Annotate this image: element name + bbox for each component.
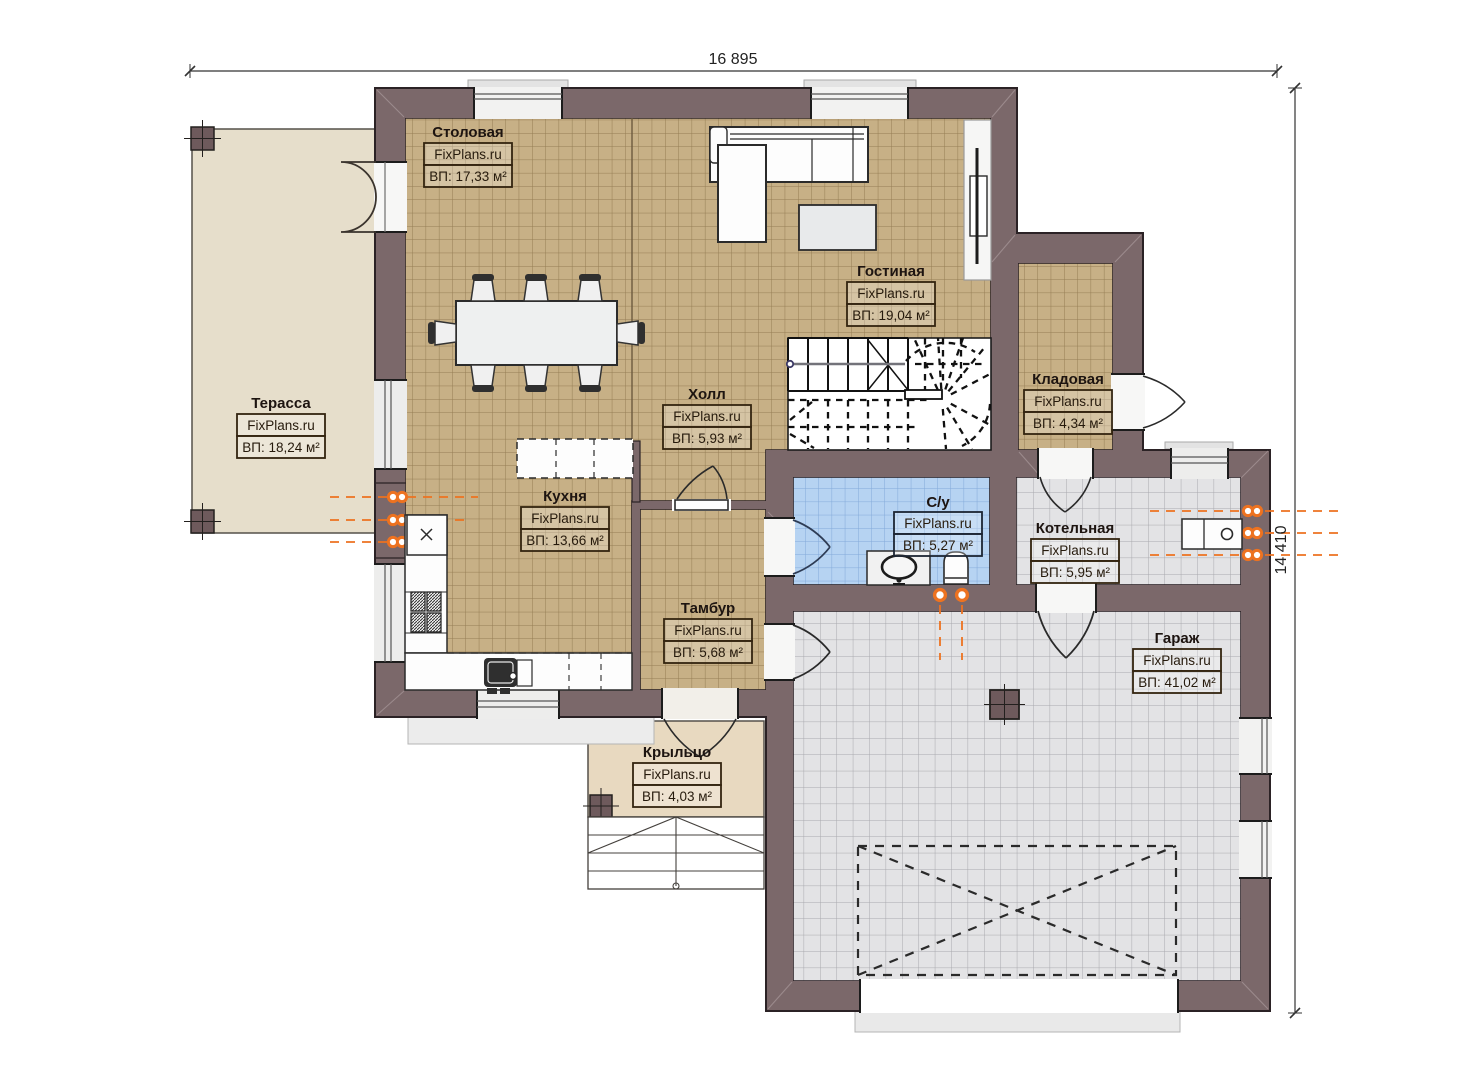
svg-text:Кухня: Кухня xyxy=(543,488,587,505)
svg-text:FixPlans.ru: FixPlans.ru xyxy=(857,286,925,301)
svg-text:ВП: 19,04 м²: ВП: 19,04 м² xyxy=(852,308,930,323)
svg-text:Столовая: Столовая xyxy=(432,124,503,141)
svg-text:ВП: 4,03 м²: ВП: 4,03 м² xyxy=(642,789,713,804)
svg-text:FixPlans.ru: FixPlans.ru xyxy=(247,418,315,433)
svg-text:FixPlans.ru: FixPlans.ru xyxy=(531,511,599,526)
svg-text:ВП: 4,34 м²: ВП: 4,34 м² xyxy=(1033,416,1104,431)
svg-text:Гараж: Гараж xyxy=(1155,630,1200,647)
svg-text:Крыльцо: Крыльцо xyxy=(643,744,711,761)
svg-text:ВП: 13,66 м²: ВП: 13,66 м² xyxy=(526,533,604,548)
svg-text:FixPlans.ru: FixPlans.ru xyxy=(643,767,711,782)
svg-text:FixPlans.ru: FixPlans.ru xyxy=(904,516,972,531)
svg-text:Котельная: Котельная xyxy=(1036,520,1115,537)
svg-text:ВП: 5,27 м²: ВП: 5,27 м² xyxy=(903,538,974,553)
svg-text:14 410: 14 410 xyxy=(1273,525,1290,574)
svg-text:Холл: Холл xyxy=(688,386,726,403)
svg-text:ВП: 18,24 м²: ВП: 18,24 м² xyxy=(242,440,320,455)
svg-text:FixPlans.ru: FixPlans.ru xyxy=(1034,394,1102,409)
svg-text:FixPlans.ru: FixPlans.ru xyxy=(673,409,741,424)
svg-text:FixPlans.ru: FixPlans.ru xyxy=(434,147,502,162)
svg-text:FixPlans.ru: FixPlans.ru xyxy=(1143,653,1211,668)
svg-text:Терасса: Терасса xyxy=(251,395,311,412)
svg-text:ВП: 5,95 м²: ВП: 5,95 м² xyxy=(1040,565,1111,580)
svg-text:16 895: 16 895 xyxy=(709,51,758,68)
svg-text:ВП: 5,68 м²: ВП: 5,68 м² xyxy=(673,645,744,660)
svg-text:FixPlans.ru: FixPlans.ru xyxy=(1041,543,1109,558)
svg-text:С/у: С/у xyxy=(926,494,950,511)
svg-text:ВП: 5,93 м²: ВП: 5,93 м² xyxy=(672,431,743,446)
svg-text:Тамбур: Тамбур xyxy=(681,600,735,617)
svg-text:FixPlans.ru: FixPlans.ru xyxy=(674,623,742,638)
svg-text:ВП: 41,02 м²: ВП: 41,02 м² xyxy=(1138,675,1216,690)
svg-text:Гостиная: Гостиная xyxy=(857,263,925,280)
svg-text:Кладовая: Кладовая xyxy=(1032,371,1104,388)
svg-text:ВП: 17,33 м²: ВП: 17,33 м² xyxy=(429,169,507,184)
